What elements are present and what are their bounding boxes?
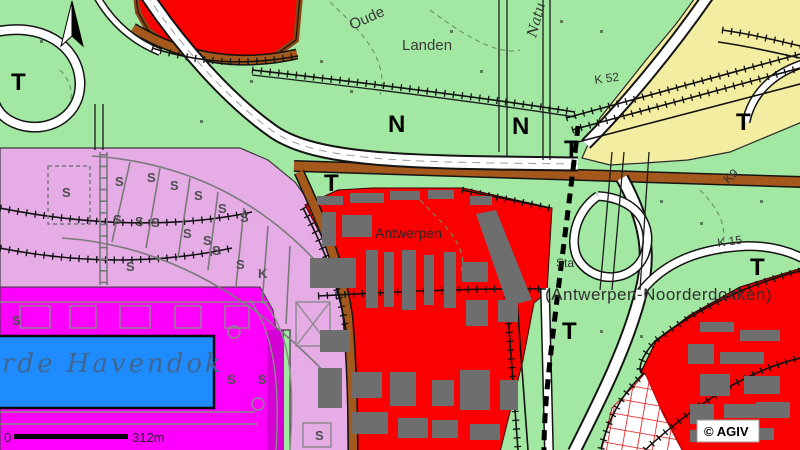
zone-letter-S: S — [315, 428, 324, 443]
zone-letter-S: S — [170, 178, 179, 193]
zone-letter-K: K — [258, 266, 268, 281]
label-noorderdokken: (Antwerpen-Noorderdokken) — [545, 285, 772, 304]
zone-letter-T: T — [564, 136, 579, 163]
label-antwerpen: Antwerpen — [375, 225, 442, 241]
zone-letter-S: S — [227, 372, 236, 387]
zone-letter-S: S — [62, 185, 71, 200]
zone-letter-S: S — [194, 188, 203, 203]
zone-letter-S: S — [240, 210, 249, 225]
zone-letter-S: S — [236, 257, 245, 272]
zone-letter-N: N — [512, 113, 529, 140]
zone-letter-S: S — [183, 226, 192, 241]
zone-letter-S: S — [135, 214, 144, 229]
zone-letter-S: S — [126, 259, 135, 274]
zone-letter-T: T — [11, 69, 26, 96]
label-havendok: rde Havendok — [2, 349, 224, 379]
scale-bar-rule — [14, 434, 128, 439]
zone-letter-T: T — [750, 254, 765, 281]
attribution-text: © AGIV — [704, 424, 749, 439]
zone-magenta-strip — [267, 330, 284, 450]
scale-zero-label: 0 — [4, 430, 11, 445]
zone-letter-T: T — [324, 170, 339, 197]
attribution-box: © AGIV — [697, 420, 759, 442]
zone-letter-T: T — [736, 109, 751, 136]
map-viewport[interactable]: Oude Landen Natu K 52 K9 K 15 Sta Antwer… — [0, 0, 800, 450]
label-station-partial: Sta — [556, 256, 574, 270]
zone-letter-S: S — [151, 215, 160, 230]
zone-letter-S: S — [212, 243, 221, 258]
zone-letter-S: S — [218, 201, 227, 216]
zone-letter-S: S — [12, 313, 21, 328]
zone-letter-S: S — [258, 372, 267, 387]
scale-distance-label: 312m — [132, 430, 165, 445]
zone-letter-S: S — [203, 233, 212, 248]
zone-letter-S: S — [113, 212, 122, 227]
zone-letter-S: S — [147, 170, 156, 185]
zoning-map-canvas[interactable]: Oude Landen Natu K 52 K9 K 15 Sta Antwer… — [0, 0, 800, 450]
label-landen: Landen — [402, 37, 452, 54]
zone-letter-S: S — [115, 174, 124, 189]
zone-letter-N: N — [388, 111, 405, 138]
zone-letter-T: T — [562, 318, 577, 345]
